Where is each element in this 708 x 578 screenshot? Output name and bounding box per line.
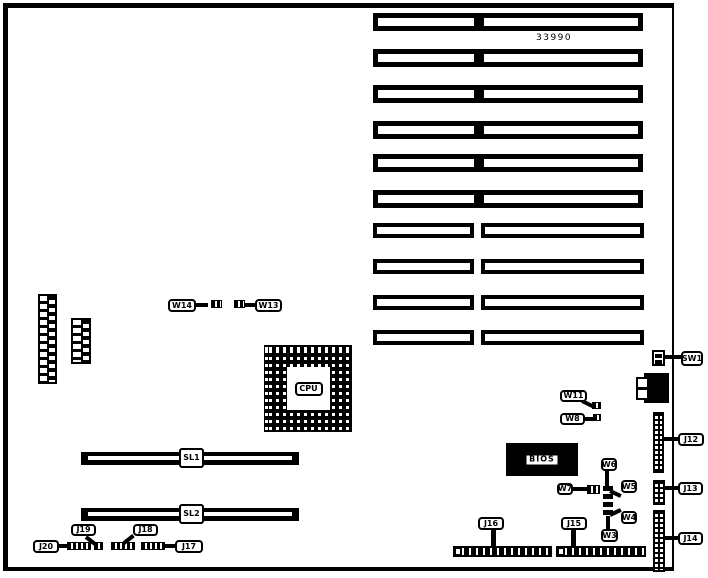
- callout-w13: W13: [255, 299, 282, 312]
- callout-j12: J12: [678, 433, 704, 446]
- sl2-label: SL2: [183, 510, 199, 518]
- dip-switch-bar: [655, 354, 662, 358]
- cpu-label-box: CPU: [295, 382, 323, 396]
- bios-label-box: BIOS: [525, 453, 560, 466]
- expansion-slot-segment: [373, 295, 474, 310]
- sl1-label-box: SL1: [179, 448, 204, 468]
- callout-j20: J20: [33, 540, 59, 553]
- callout-j18: J18: [133, 524, 158, 536]
- keyboard-connector-tab: [636, 388, 649, 400]
- callout-j14-pointer: [664, 536, 678, 540]
- expansion-slot-segment: [373, 223, 474, 238]
- connector-pins: [83, 320, 89, 362]
- callout-w11: W11: [560, 390, 587, 402]
- callout-j13-label: J13: [683, 485, 697, 493]
- callout-j16: J16: [478, 517, 504, 530]
- expansion-slot-segment: [479, 13, 643, 31]
- power-connector-large: [38, 294, 57, 384]
- dip-switch-sw1: [652, 350, 665, 366]
- callout-j15-pointer: [571, 529, 576, 547]
- callout-j12-pointer: [663, 437, 678, 441]
- callout-w8-pointer: [584, 417, 594, 421]
- jumper-j18-strip: [111, 542, 135, 550]
- callout-w7-label: W7: [558, 485, 572, 493]
- callout-j14-label: J14: [683, 535, 697, 543]
- callout-j17-pointer: [165, 544, 175, 548]
- callout-j20-pointer: [58, 544, 67, 548]
- connector-pins: [49, 296, 55, 382]
- connector-cells: [73, 320, 83, 362]
- callout-j17-label: J17: [182, 543, 196, 551]
- expansion-slot-segment: [479, 85, 643, 103]
- callout-j16-pointer: [491, 529, 496, 547]
- callout-w14-pointer: [195, 303, 208, 307]
- callout-sw1-label: SW1: [682, 355, 702, 363]
- connector-j13: [653, 480, 665, 505]
- connector-midline: [658, 512, 660, 570]
- callout-w5: W5: [621, 480, 637, 493]
- connector-midline: [658, 482, 660, 503]
- power-connector-small: [71, 318, 91, 364]
- callout-w6-label: W6: [602, 461, 616, 469]
- jumper-j17-strip: [141, 542, 165, 550]
- pin-strip-ticks: [565, 548, 644, 555]
- jumper-w8: [593, 414, 601, 421]
- expansion-slot-segment: [481, 259, 644, 274]
- callout-j13-pointer: [664, 486, 678, 490]
- callout-w6: W6: [601, 458, 617, 471]
- callout-w3: W3: [601, 529, 618, 542]
- callout-w5-label: W5: [622, 483, 636, 491]
- callout-w14: W14: [168, 299, 196, 312]
- callout-j16-label: J16: [484, 520, 498, 528]
- pin-strip-ticks: [462, 548, 550, 555]
- pin-strip-key: [559, 549, 563, 554]
- expansion-slot-segment: [479, 121, 643, 139]
- expansion-slot-segment: [479, 190, 643, 208]
- cpu-label: CPU: [299, 385, 317, 393]
- expansion-slot-segment: [481, 223, 644, 238]
- callout-j19: J19: [71, 524, 96, 536]
- callout-j13: J13: [678, 482, 703, 495]
- expansion-slot-segment: [373, 330, 474, 345]
- expansion-slot-segment: [373, 13, 479, 31]
- callout-j12-label: J12: [684, 436, 698, 444]
- expansion-slot-segment: [479, 154, 643, 172]
- callout-sw1-pointer: [665, 355, 681, 359]
- connector-j12: [653, 412, 664, 473]
- connector-cells: [40, 296, 49, 382]
- pin-strip-j15: [556, 546, 646, 557]
- expansion-slot-segment: [479, 49, 643, 67]
- callout-w4-label: W4: [622, 514, 636, 522]
- callout-w13-label: W13: [259, 302, 279, 310]
- callout-w3-label: W3: [602, 532, 616, 540]
- motherboard-diagram: 33990 W14 W13 CPU SL1 SL2 BIOS W11 W8 SW…: [0, 0, 708, 578]
- expansion-slot-segment: [481, 330, 644, 345]
- callout-j15-label: J15: [567, 520, 581, 528]
- callout-sw1: SW1: [681, 351, 703, 366]
- callout-w3-pointer: [606, 516, 610, 530]
- jumper-w14: [211, 300, 222, 308]
- callout-j18-label: J18: [138, 526, 152, 534]
- jumper-w13: [234, 300, 245, 308]
- bios-label: BIOS: [529, 456, 555, 464]
- callout-w14-label: W14: [172, 302, 192, 310]
- callout-w7: W7: [557, 483, 573, 495]
- expansion-slot-segment: [373, 190, 479, 208]
- expansion-slot-segment: [373, 154, 479, 172]
- expansion-slot-segment: [373, 121, 479, 139]
- callout-w7-pointer: [572, 487, 587, 491]
- sl2-label-box: SL2: [179, 504, 204, 524]
- cpu-socket-center: CPU: [287, 367, 330, 410]
- jumper-w11: [592, 402, 601, 409]
- callout-w6-pointer: [605, 470, 609, 487]
- callout-j20-label: J20: [39, 543, 53, 551]
- expansion-slot-segment: [481, 295, 644, 310]
- callout-j15: J15: [561, 517, 587, 530]
- callout-j19-label: J19: [76, 526, 90, 534]
- expansion-slot-segment: [373, 49, 479, 67]
- pin-strip-j16: [453, 546, 552, 557]
- part-number-text: 33990: [536, 33, 572, 43]
- callout-j17: J17: [175, 540, 203, 553]
- jumper-j20-strip: [67, 542, 91, 550]
- callout-w8-label: W8: [565, 415, 579, 423]
- callout-w11-label: W11: [564, 392, 584, 400]
- pin-strip-key: [456, 549, 460, 554]
- jumper-w7: [587, 485, 600, 494]
- callout-w8: W8: [560, 413, 585, 425]
- dip-switch-bar: [655, 360, 662, 364]
- callout-j14: J14: [678, 532, 703, 545]
- connector-midline: [658, 414, 660, 471]
- callout-w4: W4: [621, 511, 637, 524]
- bios-chip: BIOS: [506, 443, 578, 476]
- expansion-slot-segment: [373, 85, 479, 103]
- sl1-label: SL1: [183, 454, 199, 462]
- connector-j14: [653, 510, 665, 572]
- expansion-slot-segment: [373, 259, 474, 274]
